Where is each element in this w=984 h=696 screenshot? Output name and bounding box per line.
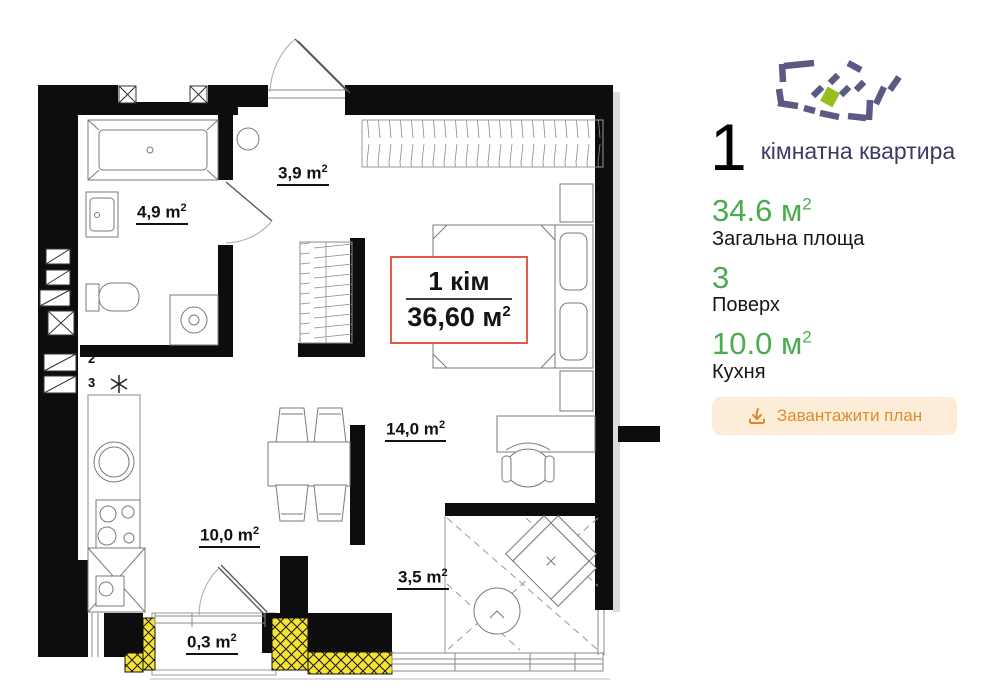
floor-plan-drawing	[0, 0, 690, 696]
toilet	[86, 283, 139, 311]
loggia-armchair	[506, 509, 604, 607]
summary-area: 36,60 м2	[407, 303, 510, 333]
apartment-summary-box: 1 кім 36,60 м2	[390, 256, 528, 344]
balcony-door	[199, 565, 267, 615]
download-icon	[747, 406, 767, 426]
washing-machine	[170, 295, 218, 345]
bathroom-sink	[86, 192, 118, 237]
bathtub	[88, 120, 218, 180]
info-panel: 1 кімнатна квартира 34.6 м2 Загальна пло…	[700, 0, 984, 696]
dining-set	[268, 408, 350, 521]
top-wardrobe	[362, 120, 603, 167]
wall-shadow	[613, 92, 620, 612]
room-label-living: 14,0 m2	[385, 419, 446, 442]
download-button-label: Завантажити план	[777, 406, 922, 426]
room-label-loggia: 3,5 m2	[397, 567, 449, 590]
apartment-type-label: кімнатна квартира	[761, 138, 955, 165]
rooms-count: 1	[710, 114, 747, 180]
riser-number-2: 2	[88, 352, 95, 365]
riser-number-3: 3	[88, 376, 95, 389]
corner-cabinet	[88, 548, 145, 612]
summary-divider	[406, 298, 512, 300]
room-label-hallway: 3,9 m2	[277, 163, 329, 186]
stat-floor: 3 Поверх	[712, 262, 864, 318]
hall-wardrobe	[300, 242, 352, 343]
stove	[96, 500, 140, 548]
floor-plan-canvas: 3,9 m2 4,9 m2 14,0 m2 10,0 m2 3,5 m2 0,3…	[0, 0, 690, 696]
download-plan-button[interactable]: Завантажити план	[712, 397, 957, 435]
stats-list: 34.6 м2 Загальна площа 3 Поверх 10.0 м2 …	[712, 195, 864, 395]
snowflake-icon	[111, 375, 127, 393]
round-table	[474, 588, 520, 634]
apartment-title: 1 кімнатна квартира	[710, 114, 955, 180]
bathroom-door	[226, 182, 272, 243]
summary-rooms: 1 кім	[428, 267, 489, 296]
hallway-stool	[237, 128, 259, 150]
entrance-door	[270, 39, 350, 93]
stat-total-area: 34.6 м2 Загальна площа	[712, 195, 864, 251]
room-label-kitchen: 10,0 m2	[199, 525, 260, 548]
stat-kitchen-area: 10.0 м2 Кухня	[712, 328, 864, 384]
room-label-balcony: 0,3 m2	[186, 632, 238, 655]
room-label-bathroom: 4,9 m2	[136, 202, 188, 225]
